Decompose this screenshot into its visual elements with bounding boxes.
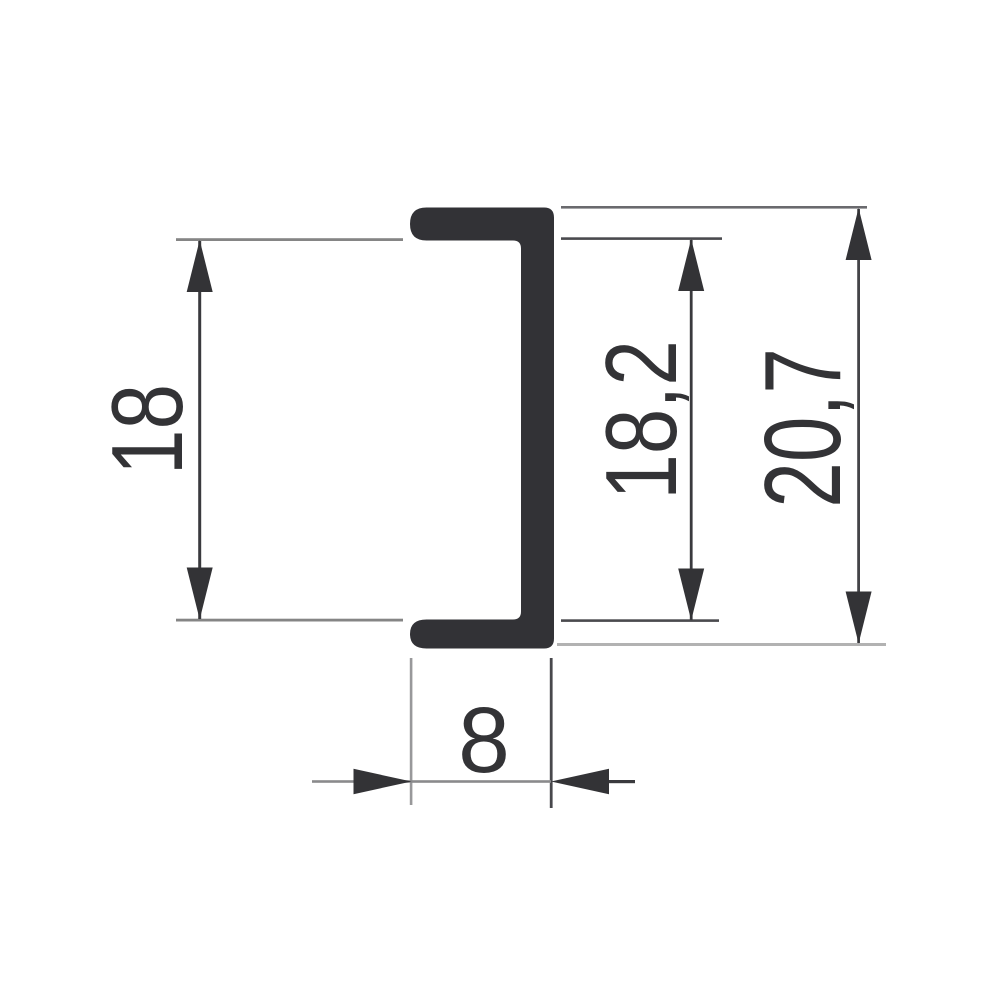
svg-text:18,2: 18,2 bbox=[586, 340, 698, 500]
svg-text:18: 18 bbox=[92, 384, 204, 475]
svg-text:8: 8 bbox=[458, 688, 510, 792]
svg-text:20,7: 20,7 bbox=[743, 348, 864, 508]
